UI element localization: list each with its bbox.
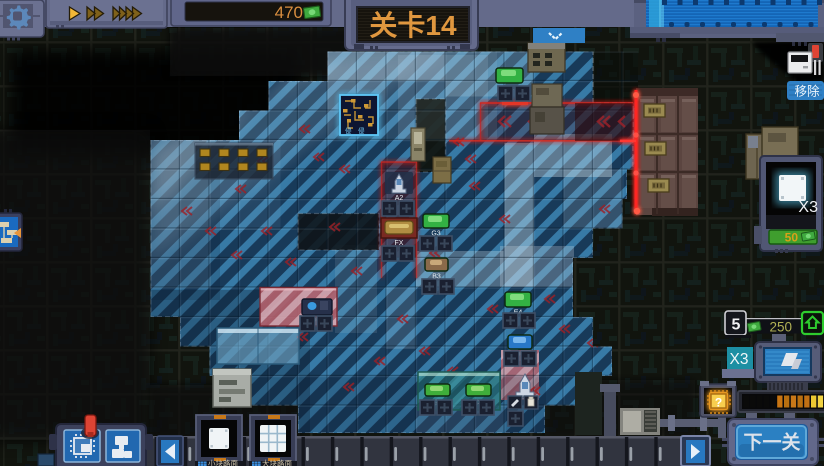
svg-text:X3: X3: [798, 199, 818, 216]
svg-text:5: 5: [732, 317, 741, 334]
svg-text:移除: 移除: [794, 84, 820, 99]
svg-text:下一关: 下一关: [743, 431, 800, 454]
svg-text:关卡14: 关卡14: [369, 10, 457, 41]
svg-text:小块路面: 小块路面: [208, 458, 238, 466]
svg-text:50: 50: [785, 231, 799, 245]
svg-text:250: 250: [769, 320, 792, 335]
svg-text:?: ?: [715, 396, 722, 410]
svg-text:470: 470: [275, 3, 303, 22]
svg-text:侵: 侵: [345, 126, 352, 135]
svg-text:侵: 侵: [358, 126, 365, 135]
svg-text:X3: X3: [730, 351, 749, 368]
svg-text:大块路面: 大块路面: [262, 458, 292, 466]
